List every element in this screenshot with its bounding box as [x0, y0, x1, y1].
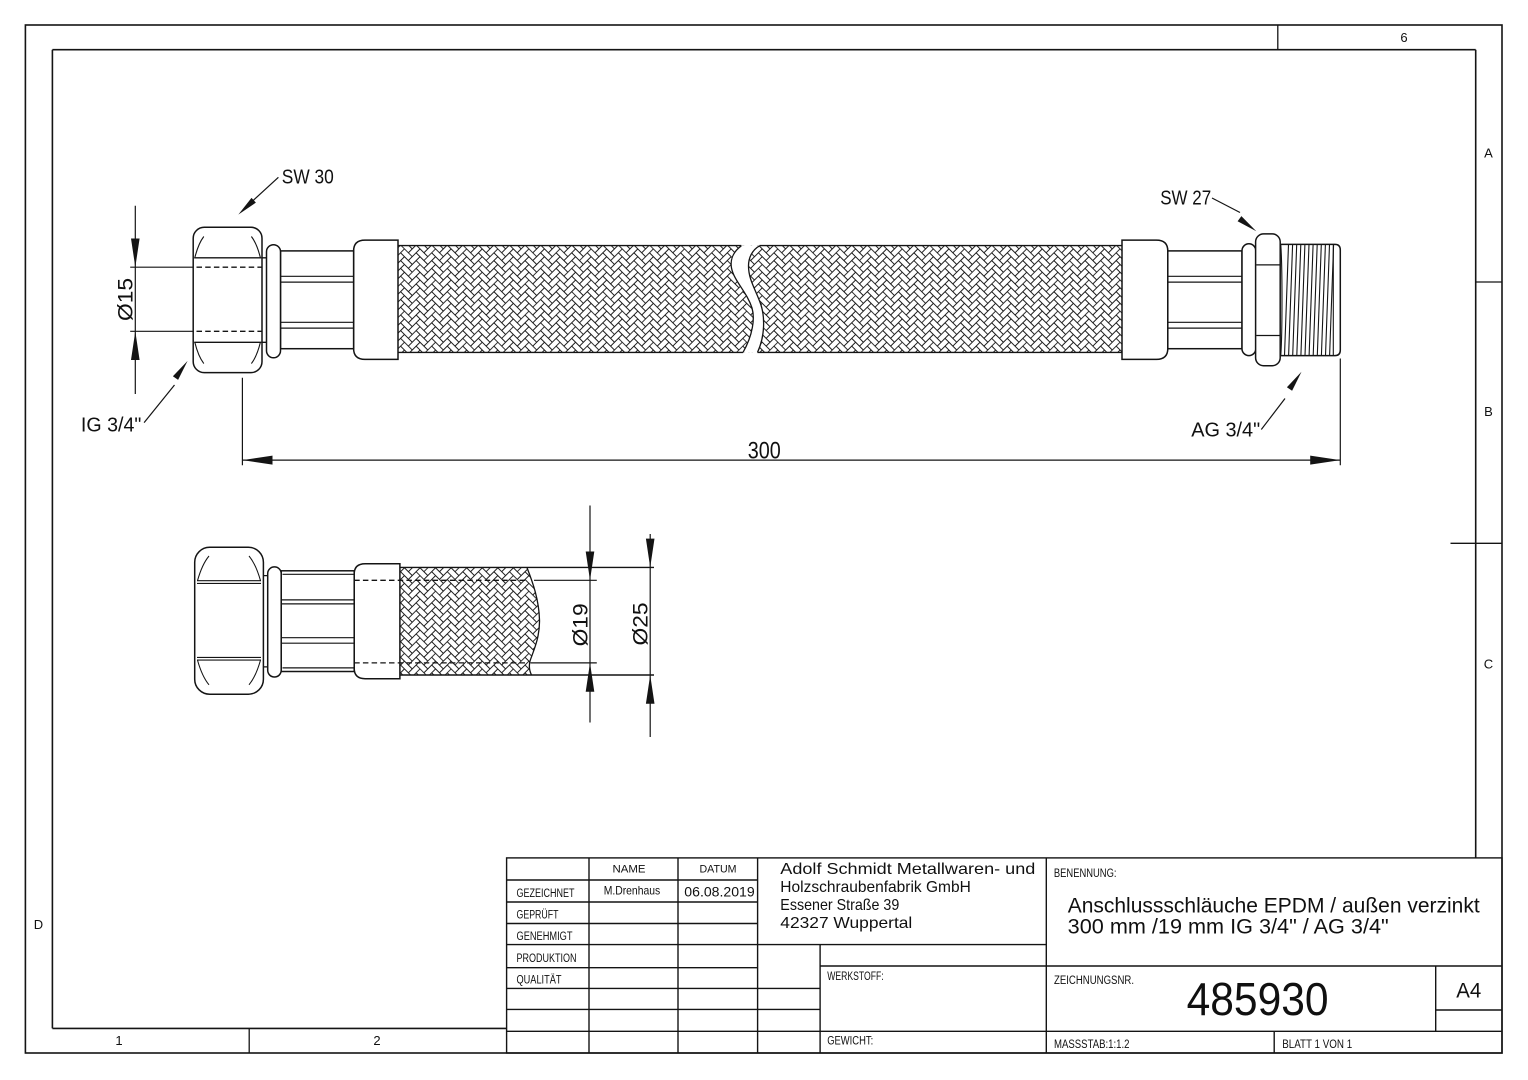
svg-text:QUALITÄT: QUALITÄT: [517, 975, 562, 987]
svg-text:Essener Straße 39: Essener Straße 39: [780, 897, 899, 914]
svg-text:A4: A4: [1456, 980, 1481, 1003]
svg-text:A: A: [1484, 146, 1493, 161]
svg-text:300 mm /19 mm IG 3/4" / AG 3/4: 300 mm /19 mm IG 3/4" / AG 3/4": [1068, 915, 1389, 939]
svg-text:NAME: NAME: [613, 864, 646, 876]
svg-text:B: B: [1484, 404, 1493, 419]
svg-text:GEWICHT:: GEWICHT:: [827, 1035, 873, 1047]
svg-text:Ø19: Ø19: [568, 603, 592, 646]
svg-text:2: 2: [373, 1033, 380, 1048]
svg-text:MASSSTAB:1:1.2: MASSSTAB:1:1.2: [1054, 1039, 1130, 1051]
svg-text:PRODUKTION: PRODUKTION: [517, 953, 577, 965]
svg-text:BENENNUNG:: BENENNUNG:: [1054, 868, 1117, 880]
svg-text:SW 30: SW 30: [282, 166, 334, 189]
svg-text:485930: 485930: [1187, 973, 1329, 1025]
svg-text:AG 3/4": AG 3/4": [1191, 419, 1260, 442]
svg-text:D: D: [34, 917, 43, 932]
svg-text:300: 300: [748, 438, 781, 465]
svg-text:BLATT 1 VON 1: BLATT 1 VON 1: [1282, 1039, 1352, 1051]
svg-text:Holzschraubenfabrik GmbH: Holzschraubenfabrik GmbH: [780, 879, 971, 896]
svg-text:WERKSTOFF:: WERKSTOFF:: [827, 971, 884, 983]
svg-text:42327 Wuppertal: 42327 Wuppertal: [780, 915, 912, 932]
svg-text:Adolf Schmidt Metallwaren- und: Adolf Schmidt Metallwaren- und: [780, 861, 1035, 878]
svg-text:M.Drenhaus: M.Drenhaus: [604, 884, 661, 898]
svg-text:C: C: [1484, 657, 1493, 672]
svg-text:GENEHMIGT: GENEHMIGT: [517, 931, 573, 943]
svg-text:GEPRÜFT: GEPRÜFT: [517, 910, 559, 922]
svg-text:SW 27: SW 27: [1160, 186, 1211, 209]
svg-text:6: 6: [1400, 30, 1407, 45]
svg-text:Ø15: Ø15: [113, 278, 137, 321]
svg-text:ZEICHNUNGSNR.: ZEICHNUNGSNR.: [1054, 975, 1134, 987]
svg-text:DATUM: DATUM: [700, 864, 737, 876]
svg-text:06.08.2019: 06.08.2019: [684, 884, 755, 900]
svg-text:Ø25: Ø25: [628, 602, 652, 645]
svg-text:GEZEICHNET: GEZEICHNET: [517, 888, 575, 900]
svg-text:1: 1: [115, 1033, 122, 1048]
svg-text:IG 3/4": IG 3/4": [81, 414, 141, 437]
